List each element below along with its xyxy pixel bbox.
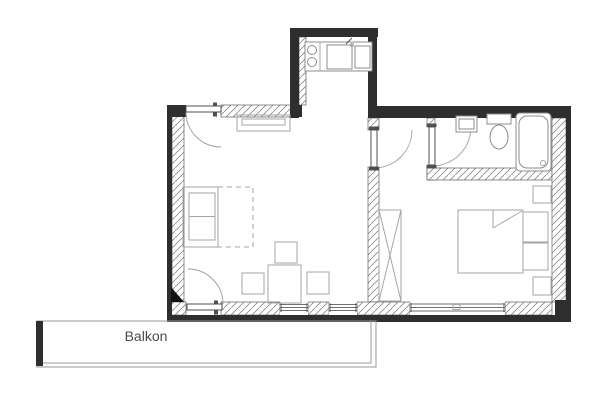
entry-door-leaf xyxy=(186,106,221,112)
wall-left xyxy=(172,107,184,302)
dining-chair xyxy=(307,272,329,294)
dining-chair xyxy=(242,273,264,294)
balcony-label: Balkon xyxy=(125,328,168,344)
wardrobe xyxy=(379,210,401,301)
wall-kitchen-top xyxy=(290,28,378,37)
bathroom-fixtures xyxy=(456,113,551,171)
balcony: Balkon xyxy=(36,321,376,367)
walls xyxy=(167,28,571,322)
bathroom-door-arc xyxy=(432,127,471,166)
wall-bottom-seg xyxy=(505,302,552,315)
kitchen-niche xyxy=(305,38,372,71)
pillow xyxy=(523,212,548,242)
bedroom-door-arc xyxy=(374,130,412,168)
dining-chair xyxy=(275,242,297,263)
balcony-door xyxy=(187,269,223,315)
bedroom-window xyxy=(410,302,505,315)
wall-corner-bottomright xyxy=(555,300,571,315)
sink-basin xyxy=(355,46,370,68)
balcony-door-leaf xyxy=(187,304,222,310)
radiator-inner xyxy=(242,119,285,125)
sink-basin xyxy=(327,45,352,69)
bathroom-door-leaf xyxy=(429,127,435,165)
nightstand xyxy=(533,277,551,295)
entry-door-arc xyxy=(186,112,221,147)
nightstand xyxy=(533,186,551,203)
balcony-door-arc xyxy=(188,269,223,304)
double-bed xyxy=(458,210,523,273)
pillow xyxy=(523,243,548,270)
wall-right xyxy=(552,118,566,302)
blanket-fold xyxy=(493,210,522,228)
wall-kitchen-junction xyxy=(290,105,302,117)
wall-interior xyxy=(368,167,379,302)
balcony-left-wall xyxy=(36,321,43,366)
dining-table xyxy=(268,265,301,303)
toilet-bowl xyxy=(490,125,508,149)
radiator xyxy=(237,115,290,131)
sofa-bed-extension xyxy=(218,187,253,247)
wall-kitchen-left-outer xyxy=(290,28,299,118)
wall-right-outer xyxy=(566,106,571,322)
wall-bottom-seg xyxy=(171,302,186,315)
balcony-railing-inner xyxy=(42,321,371,363)
bedroom-door xyxy=(369,127,412,171)
balcony-railing-outer xyxy=(37,321,376,367)
cooktop-burner xyxy=(308,46,317,55)
cooktop-burner xyxy=(308,58,317,67)
bedroom-furniture xyxy=(379,186,551,301)
entry-door xyxy=(186,103,221,148)
floor-plan-page: Balkon xyxy=(0,0,604,403)
living-window-1 xyxy=(280,302,308,315)
floor-plan-image: Balkon xyxy=(0,0,604,403)
wall-corner-topleft xyxy=(167,105,186,117)
wall-bottom-seg xyxy=(308,302,329,315)
living-window-2 xyxy=(329,302,357,315)
toilet-tank xyxy=(487,114,511,124)
wall-bottom-seg xyxy=(221,302,280,315)
wall-bottom-seg xyxy=(357,302,410,315)
bedroom-door-leaf xyxy=(371,130,377,167)
washbasin-inner xyxy=(459,119,474,129)
